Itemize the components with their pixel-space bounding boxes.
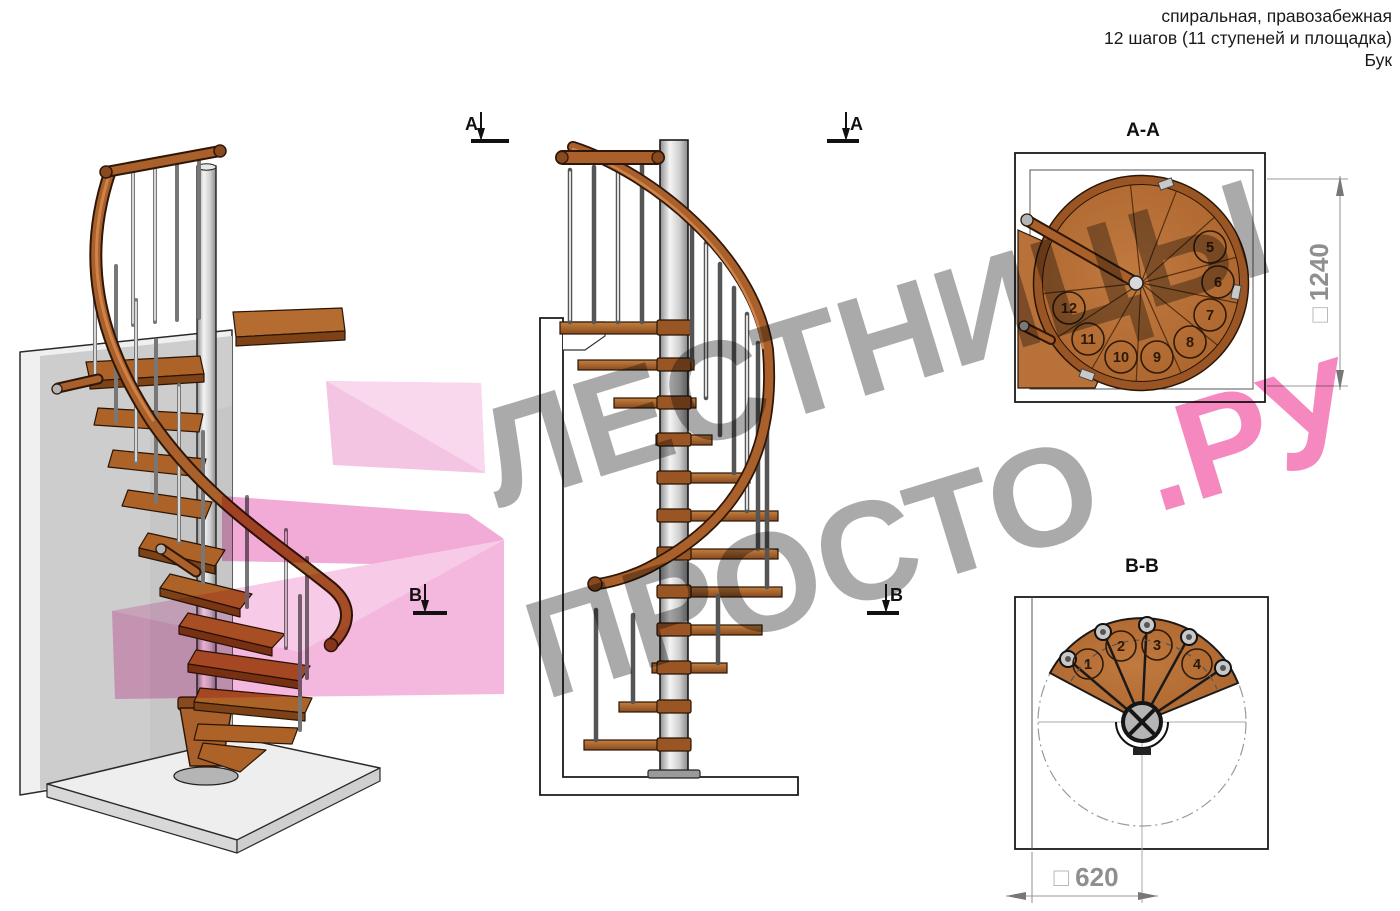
staircase-technical-drawing: спиральная, правозабежная 12 шагов (11 с…	[0, 0, 1400, 911]
marker-a-right: A	[827, 112, 863, 141]
svg-text:3: 3	[1153, 638, 1161, 654]
isometric-view	[20, 145, 380, 853]
marker-a-left-letter: A	[465, 114, 478, 134]
section-bb: B-B	[1006, 556, 1268, 903]
svg-text:2: 2	[1117, 639, 1125, 655]
aa-dimension-text: □1240	[1304, 243, 1334, 323]
pole-base-flange	[174, 767, 238, 785]
svg-text:4: 4	[1193, 657, 1201, 673]
pole-base-elevation	[648, 770, 700, 778]
svg-text:8: 8	[1186, 335, 1194, 351]
svg-text:10: 10	[1113, 350, 1129, 366]
marker-b-right-letter: B	[890, 585, 903, 605]
section-aa-label: A-A	[1126, 120, 1160, 141]
marker-a-right-letter: A	[850, 114, 863, 134]
svg-text:9: 9	[1153, 350, 1161, 366]
marker-b-left-letter: B	[409, 585, 422, 605]
section-bb-label: B-B	[1125, 556, 1159, 577]
marker-a-left: A	[465, 112, 509, 141]
drawing-sheet: спиральная, правозабежная 12 шагов (11 с…	[0, 0, 1400, 911]
iso-step	[194, 724, 298, 744]
title-line-2: 12 шагов (11 ступеней и площадка)	[1104, 28, 1392, 48]
svg-text:1: 1	[1084, 657, 1092, 673]
bb-dimension-text: □620	[1053, 862, 1118, 892]
title-line-1: спиральная, правозабежная	[1161, 6, 1392, 26]
top-rail	[556, 151, 664, 164]
title-block: спиральная, правозабежная 12 шагов (11 с…	[1104, 6, 1392, 70]
title-line-3: Бук	[1364, 50, 1392, 70]
